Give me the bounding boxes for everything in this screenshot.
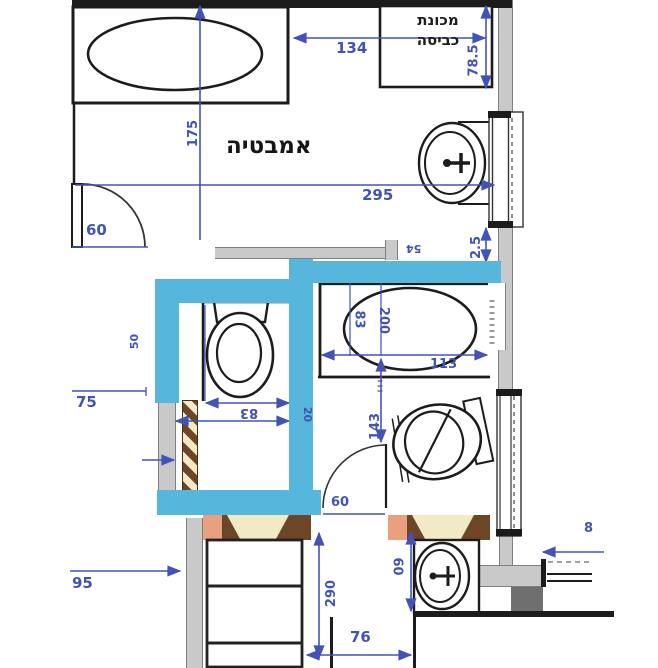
dim-label-95: 95: [72, 576, 93, 591]
dim-label-78-5: 78.5: [468, 44, 481, 76]
wall-bottom-thick: [413, 611, 614, 617]
bathtub-second: [318, 282, 490, 378]
dim-label-60-top: 60: [86, 223, 107, 238]
dim-label-113: 113: [430, 358, 457, 371]
highlight-bottom-bar: [157, 490, 321, 515]
dim-label-200: 200: [377, 307, 390, 334]
dim-label-83-niche: 83: [240, 406, 258, 419]
dim-label-83-tub: 83: [353, 310, 366, 328]
sink-top-right: [419, 122, 492, 204]
plan-linework: [0, 0, 658, 668]
dim-label-60-sink: 60: [391, 557, 404, 575]
window-right-lower: [496, 389, 522, 536]
highlight-left-bar: [155, 279, 179, 403]
wall-corner-lower: [330, 617, 333, 668]
dim-label-60-door: 60: [331, 496, 349, 509]
window-right-upper: [488, 111, 523, 228]
door-top-left: [72, 184, 145, 247]
highlight-long-bar: [289, 261, 501, 283]
toilet-right-tilted: [386, 395, 494, 487]
dim-label-20: 20: [302, 407, 313, 422]
floor-plan-canvas: אמבטיה מכונת כביסה 134 295 175 78.5 2.5 …: [0, 0, 658, 668]
wall-below-sink: [413, 611, 416, 668]
stairs-ladder: [207, 540, 302, 667]
dim-label-2-5: 2.5: [470, 236, 483, 259]
dim-label-76: 76: [350, 630, 371, 645]
dim-label-175: 175: [187, 120, 200, 147]
dim-label-295: 295: [362, 188, 393, 203]
dim-label-290: 290: [325, 580, 338, 607]
room-label-bathtub: אמבטיה: [226, 133, 312, 159]
dim-label-75: 75: [76, 395, 97, 410]
dim-label-143: 143: [369, 413, 382, 440]
washer-label-line1: מכונת: [396, 11, 480, 31]
bathtub-main: [73, 7, 288, 103]
highlight-right-bar: [289, 259, 313, 515]
dim-label-50: 50: [129, 334, 140, 349]
window-bottom-right: [541, 559, 592, 587]
dim-label-8-partial: 8: [584, 522, 593, 535]
dim-label-134: 134: [336, 41, 367, 56]
dim-label-54: 54: [406, 243, 421, 254]
toilet-left: [207, 302, 273, 397]
sink-bottom: [414, 540, 479, 613]
